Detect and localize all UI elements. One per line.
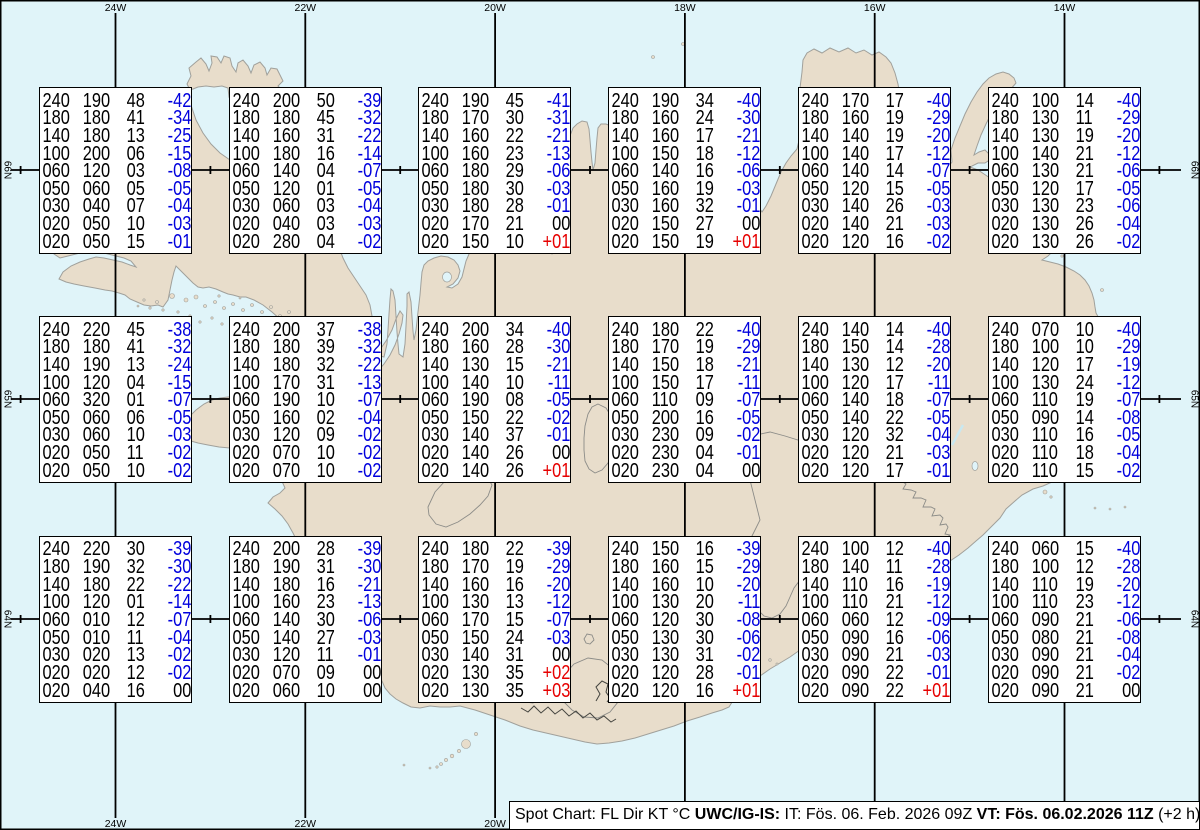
svg-text:24W: 24W <box>105 818 127 830</box>
svg-text:22W: 22W <box>295 2 317 14</box>
svg-text:65N: 65N <box>1189 390 1200 408</box>
svg-text:66N: 66N <box>2 161 13 179</box>
svg-text:22W: 22W <box>295 818 317 830</box>
svg-text:18W: 18W <box>674 2 696 14</box>
svg-text:65N: 65N <box>2 390 13 408</box>
svg-text:16W: 16W <box>864 2 886 14</box>
svg-text:24W: 24W <box>105 2 127 14</box>
svg-text:14W: 14W <box>1054 2 1076 14</box>
svg-text:64N: 64N <box>1189 610 1200 628</box>
svg-text:20W: 20W <box>484 818 506 830</box>
svg-text:64N: 64N <box>2 610 13 628</box>
svg-text:20W: 20W <box>484 2 506 14</box>
svg-text:66N: 66N <box>1189 161 1200 179</box>
